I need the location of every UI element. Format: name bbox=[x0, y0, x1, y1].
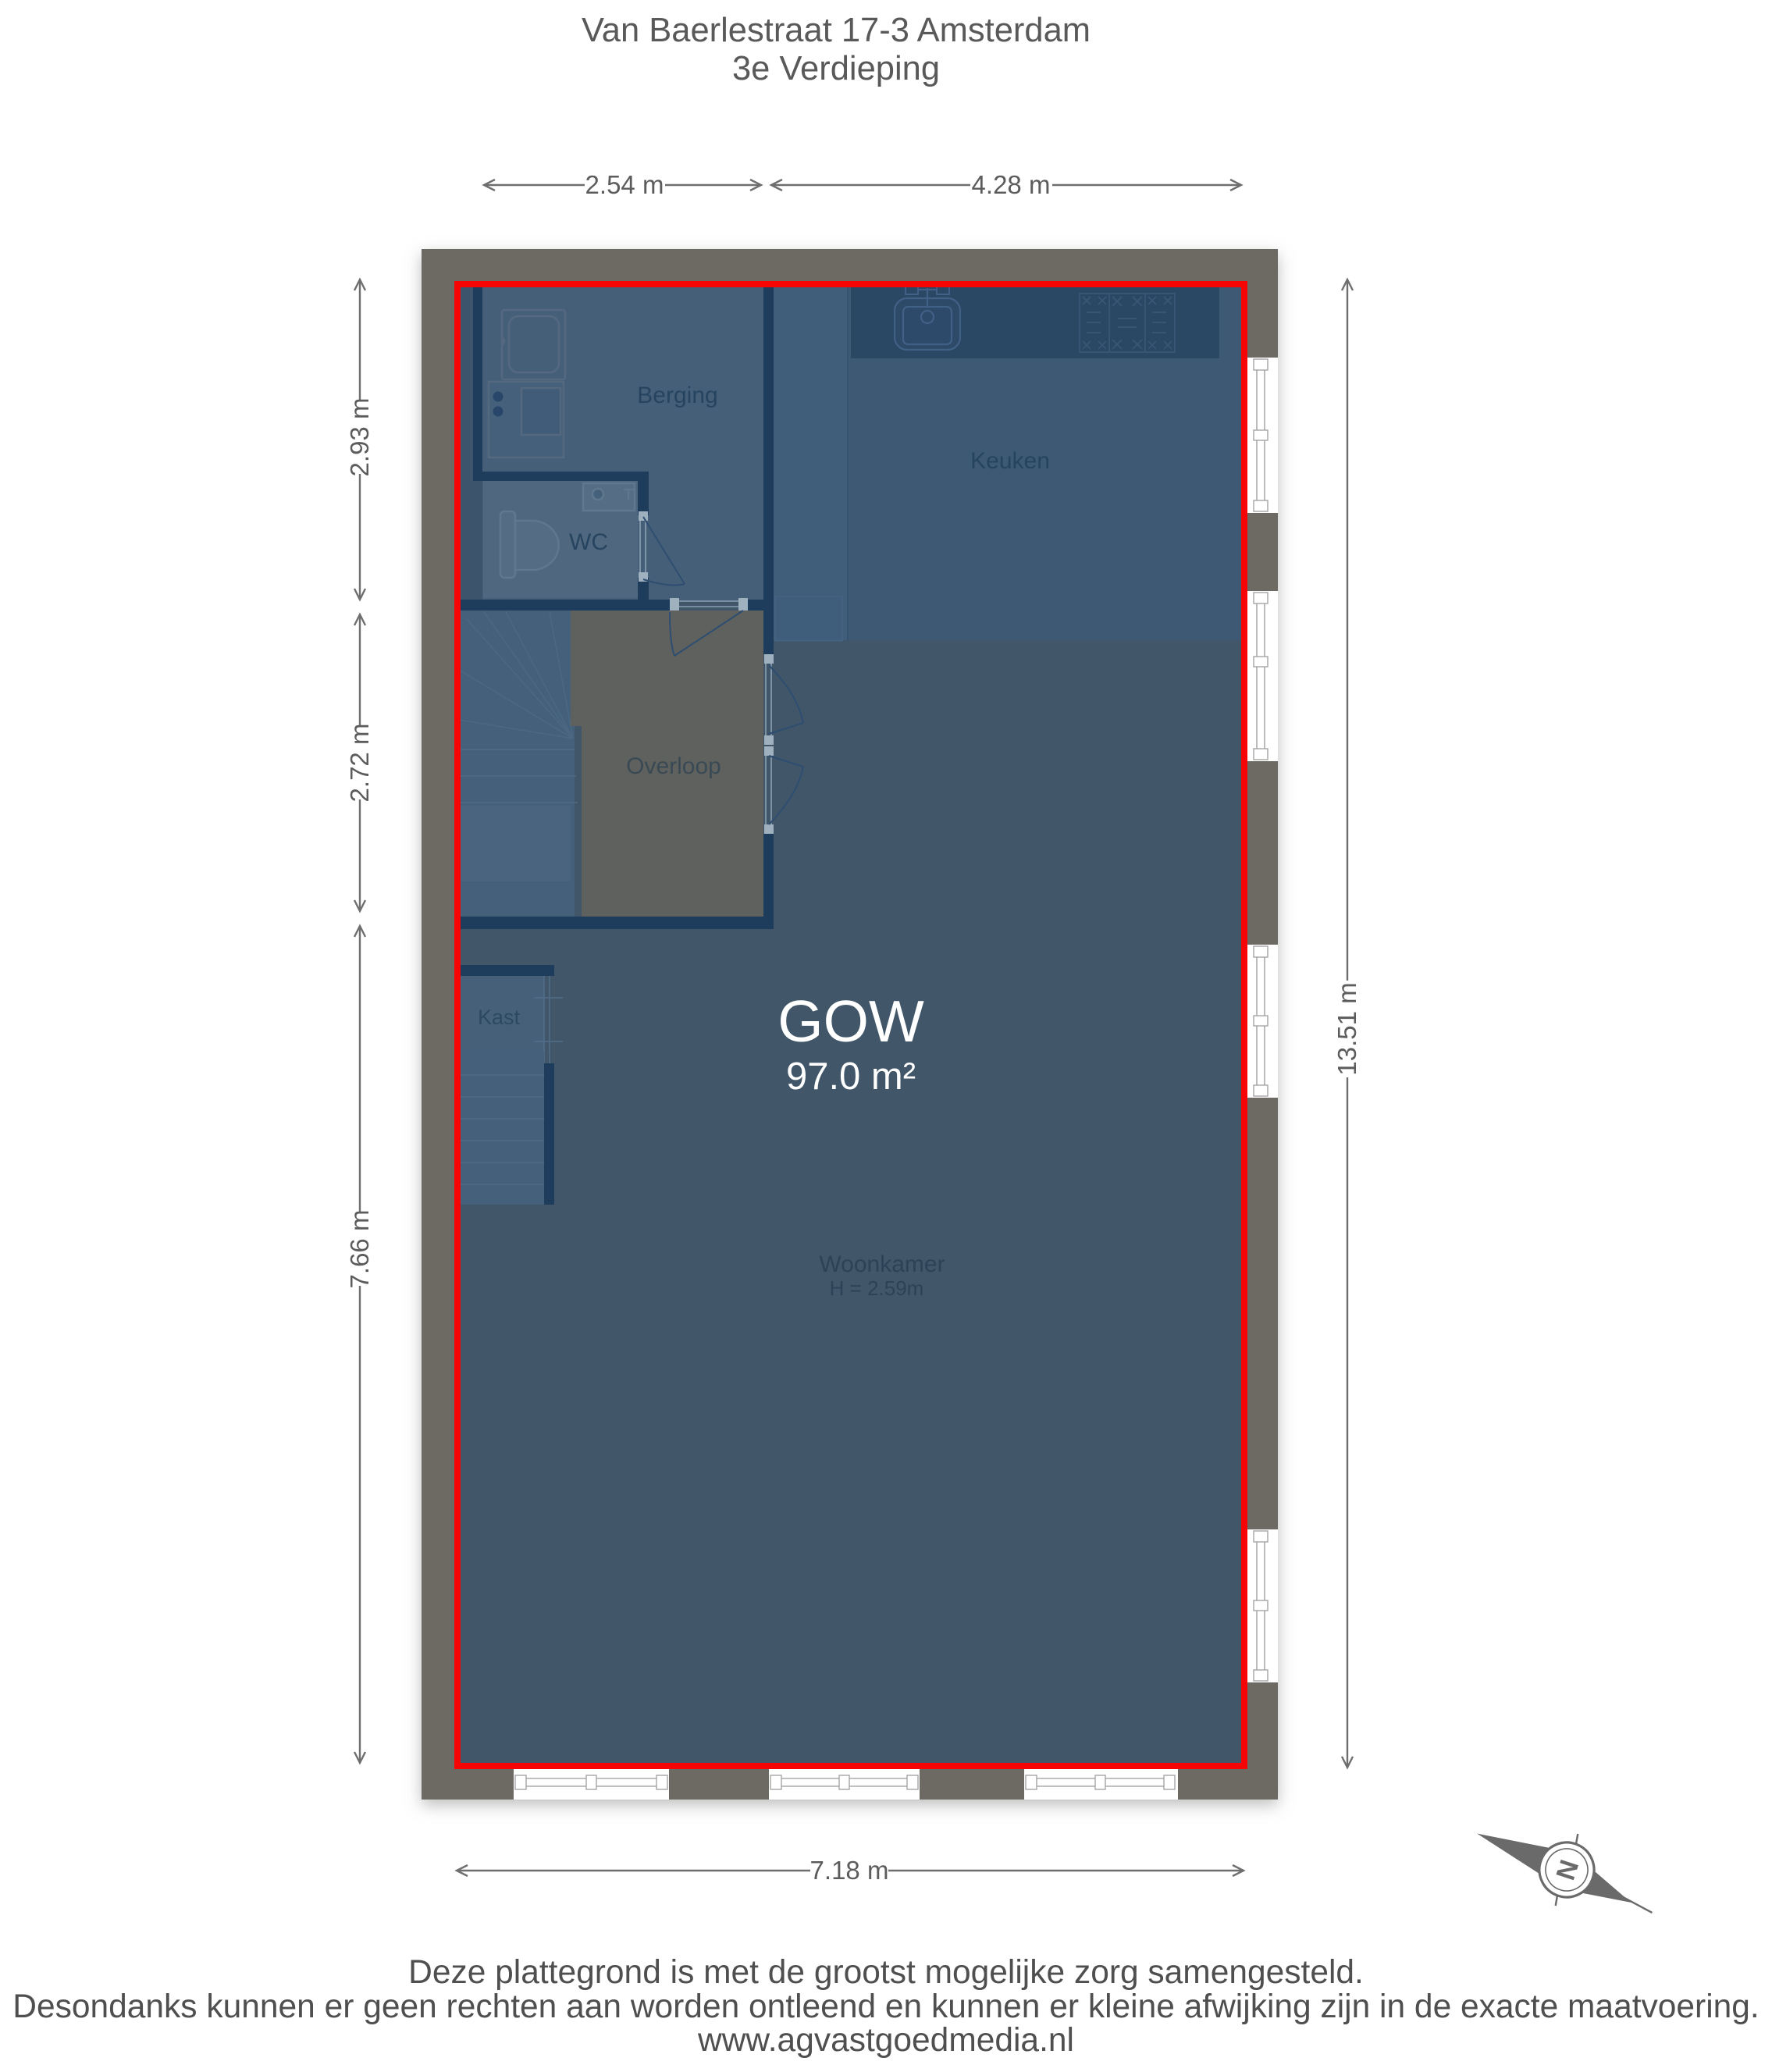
svg-text:13.51 m: 13.51 m bbox=[1333, 982, 1361, 1075]
svg-text:4.28 m: 4.28 m bbox=[972, 170, 1051, 199]
svg-text:H = 2.59m: H = 2.59m bbox=[830, 1276, 924, 1300]
svg-text:2.54 m: 2.54 m bbox=[585, 170, 664, 199]
svg-text:3e Verdieping: 3e Verdieping bbox=[732, 50, 940, 87]
svg-text:Woonkamer: Woonkamer bbox=[819, 1251, 945, 1277]
svg-text:Keuken: Keuken bbox=[970, 448, 1050, 474]
svg-text:97.0 m²: 97.0 m² bbox=[786, 1056, 916, 1098]
svg-text:7.66 m: 7.66 m bbox=[345, 1210, 374, 1289]
svg-text:WC: WC bbox=[569, 529, 608, 555]
svg-text:7.18 m: 7.18 m bbox=[810, 1856, 889, 1885]
svg-text:Overloop: Overloop bbox=[626, 753, 721, 779]
svg-text:Berging: Berging bbox=[637, 383, 717, 408]
svg-text:Desondanks kunnen er geen rech: Desondanks kunnen er geen rechten aan wo… bbox=[12, 1988, 1759, 2025]
svg-text:2.72 m: 2.72 m bbox=[345, 724, 374, 803]
svg-text:Van Baerlestraat 17-3 Amsterda: Van Baerlestraat 17-3 Amsterdam bbox=[582, 12, 1091, 49]
svg-text:Kast: Kast bbox=[478, 1006, 521, 1029]
svg-text:www.agvastgoedmedia.nl: www.agvastgoedmedia.nl bbox=[697, 2022, 1074, 2059]
svg-text:Deze plattegrond is met de gro: Deze plattegrond is met de grootst mogel… bbox=[408, 1954, 1364, 1991]
svg-text:2.93 m: 2.93 m bbox=[345, 398, 374, 477]
svg-text:GOW: GOW bbox=[777, 988, 924, 1054]
